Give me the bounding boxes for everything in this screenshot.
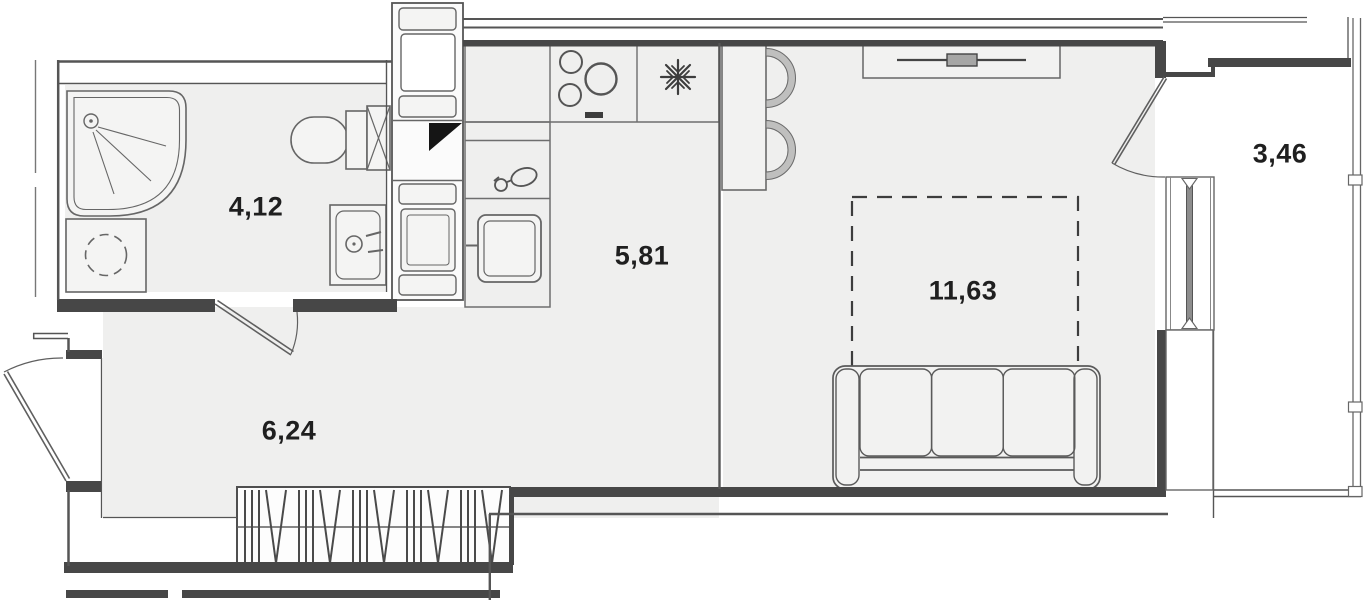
window-mullion xyxy=(1187,186,1193,322)
lower-floor-outline xyxy=(66,590,168,598)
bathroom-bottom-wall xyxy=(57,299,203,312)
tv-stand xyxy=(863,42,1060,78)
lower-floor-outline xyxy=(182,590,500,598)
entrance-door xyxy=(4,358,70,481)
wall-below-window xyxy=(1166,330,1213,490)
door-jamb xyxy=(203,299,215,312)
room-label-kitchen: 5,81 xyxy=(615,241,670,272)
room-label-bathroom: 4,12 xyxy=(229,192,284,223)
balcony-window xyxy=(1166,177,1214,490)
hallway-bottom-wall xyxy=(64,562,513,573)
entrance-door-jamb xyxy=(66,350,102,359)
room-label-balcony: 3,46 xyxy=(1253,139,1308,170)
toilet-bowl xyxy=(291,117,348,163)
top-exterior-wall xyxy=(463,40,1163,47)
toilet-tank xyxy=(346,111,367,169)
kitchen-appliance xyxy=(466,215,541,282)
sofa xyxy=(833,366,1100,489)
toilet xyxy=(291,111,367,169)
wall-step xyxy=(509,495,514,565)
room-label-hallway: 6,24 xyxy=(262,416,317,447)
washing-machine xyxy=(66,219,146,292)
entrance-door-jamb xyxy=(66,481,102,492)
bathroom-bottom-wall xyxy=(307,299,397,312)
room-label-living-room: 11,63 xyxy=(929,276,998,307)
oven-handle xyxy=(585,112,603,118)
balcony-top-wall xyxy=(1208,58,1351,67)
balcony-glazing xyxy=(1349,18,1363,497)
right-wall-lower xyxy=(1157,330,1166,490)
door-swing-arc xyxy=(4,358,63,372)
bathroom-sink xyxy=(330,205,386,285)
refrigerator-snowflake-icon xyxy=(661,60,695,94)
utility-column-cabinets xyxy=(392,3,463,300)
door-jamb xyxy=(293,299,307,312)
floor-plan: 4,12 5,81 6,24 11,63 3,46 xyxy=(0,0,1369,600)
wardrobe-hangers xyxy=(237,487,510,566)
tv-icon xyxy=(947,54,977,66)
balcony-door-head xyxy=(1163,72,1215,77)
floor-plan-drawing xyxy=(0,0,1369,600)
living-bottom-wall xyxy=(510,487,1166,497)
